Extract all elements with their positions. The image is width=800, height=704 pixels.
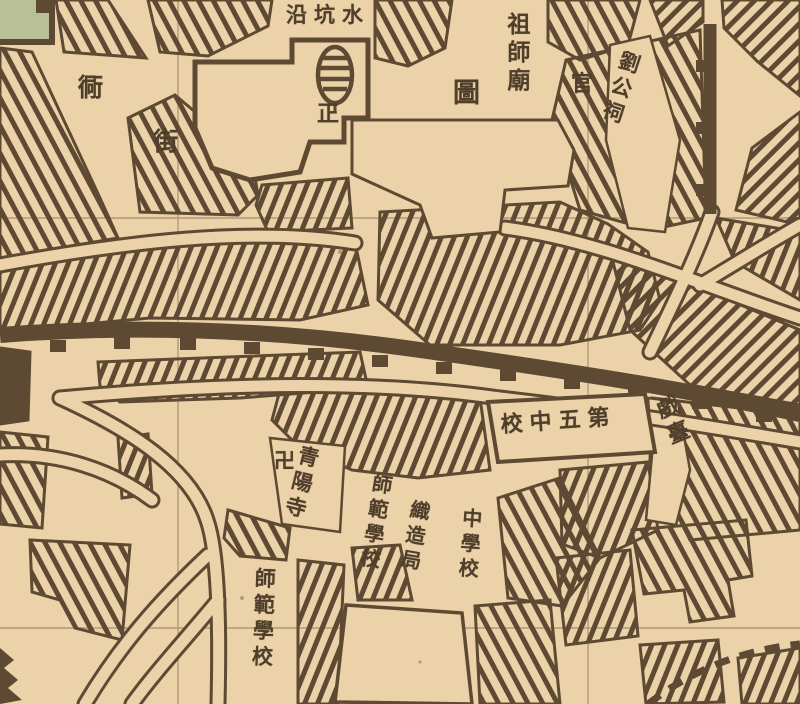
adjacent-sheet-corner <box>0 0 52 42</box>
label-tong-street-char: 衕 <box>78 74 103 101</box>
map-canvas[interactable]: 沿坑水 衕 街 正 祖師廟 圖 官 劉公祠 校中五第 戲臺 卍 青陽寺 師範學校… <box>0 0 800 704</box>
map-drawing <box>0 0 800 704</box>
label-zushi-temple: 祖師廟 <box>503 12 528 96</box>
label-jie-street-char: 街 <box>153 128 178 155</box>
label-tu-char: 圖 <box>453 79 480 108</box>
label-zheng-char: 正 <box>317 103 339 127</box>
pond <box>318 47 352 103</box>
school-field <box>335 605 472 704</box>
label-guan-char: 官 <box>571 73 593 97</box>
label-shuikengyan-street: 沿坑水 <box>286 4 370 27</box>
label-middle-school: 中學校 <box>455 507 482 583</box>
label-normal-school-south: 師範學校 <box>249 567 275 672</box>
